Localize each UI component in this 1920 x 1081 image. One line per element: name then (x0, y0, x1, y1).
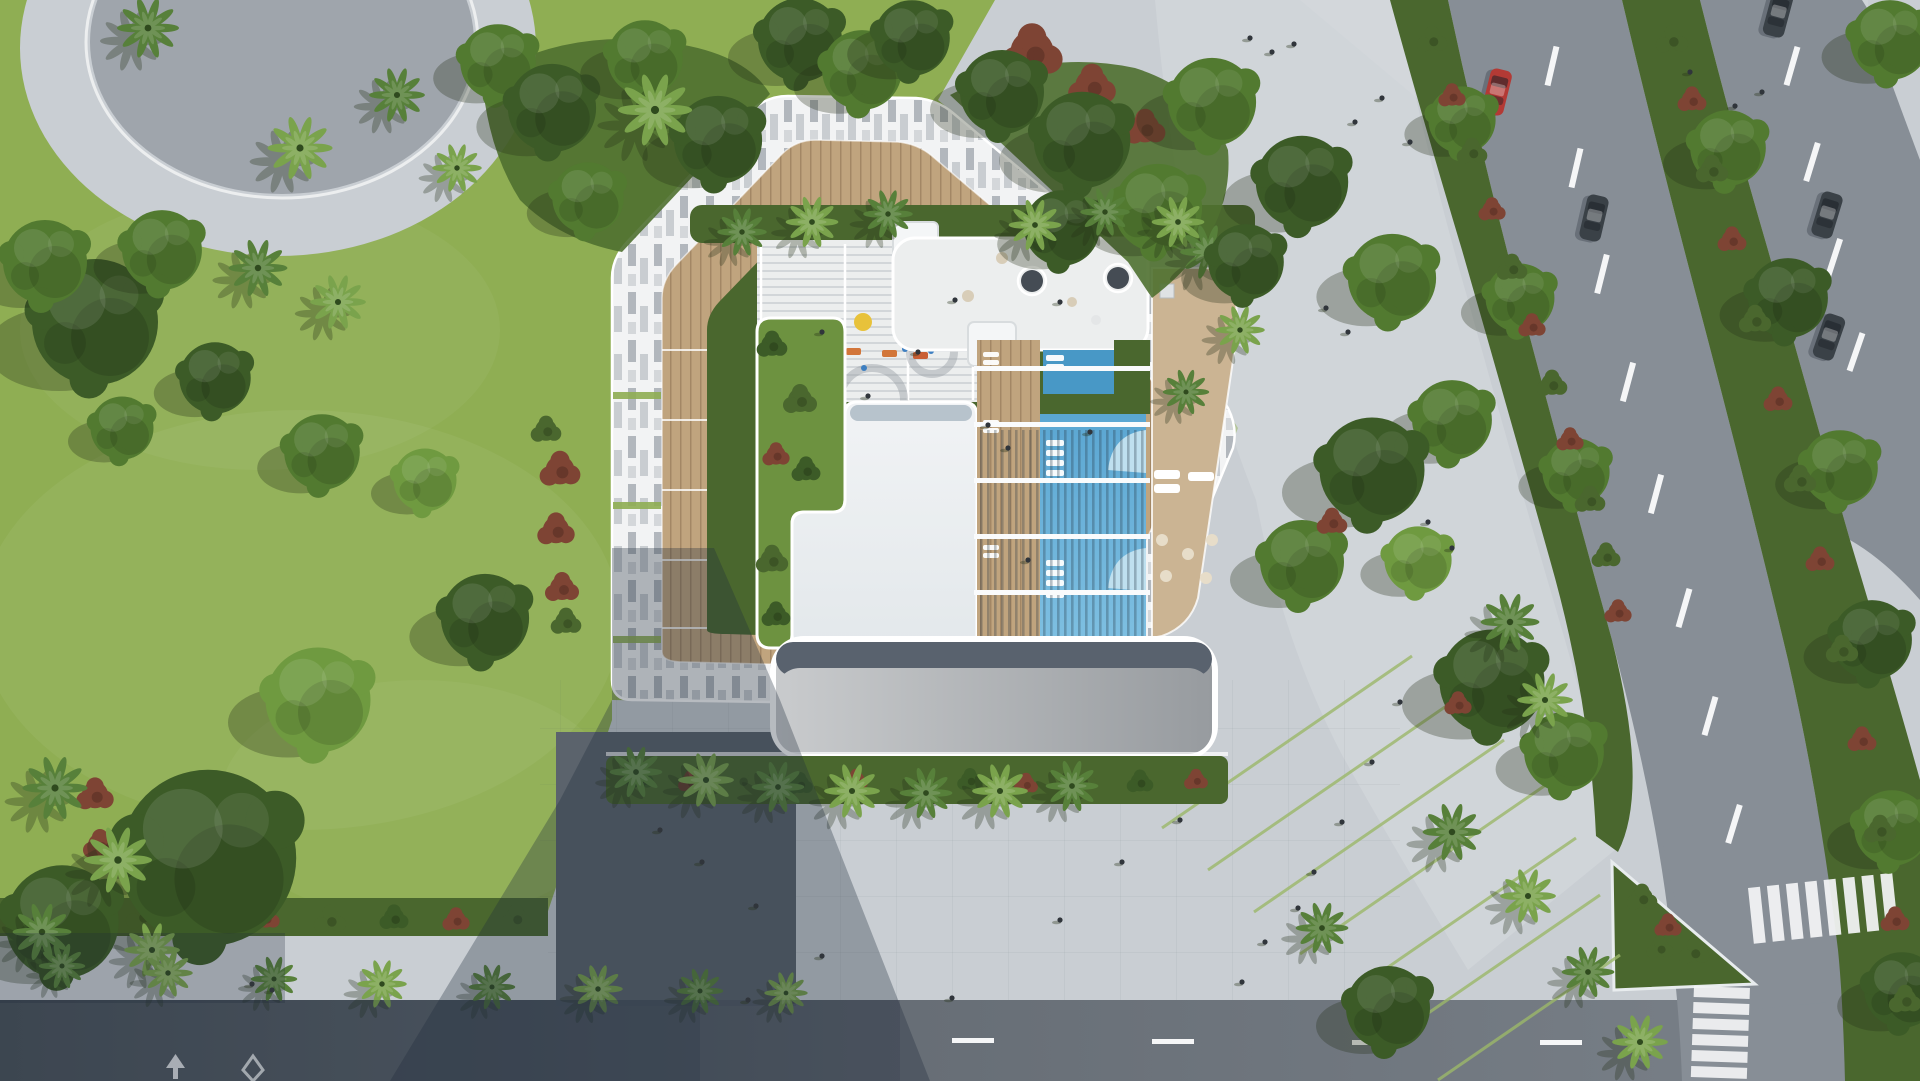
entrance-canopy (770, 636, 1218, 760)
roof-edge-band (850, 405, 972, 421)
pool-zone (974, 340, 1150, 648)
yellow-umbrella (854, 313, 872, 331)
aerial-site-render (0, 0, 1920, 1081)
pool-hedge-strip (1040, 394, 1148, 414)
render-canvas (0, 0, 1920, 1081)
